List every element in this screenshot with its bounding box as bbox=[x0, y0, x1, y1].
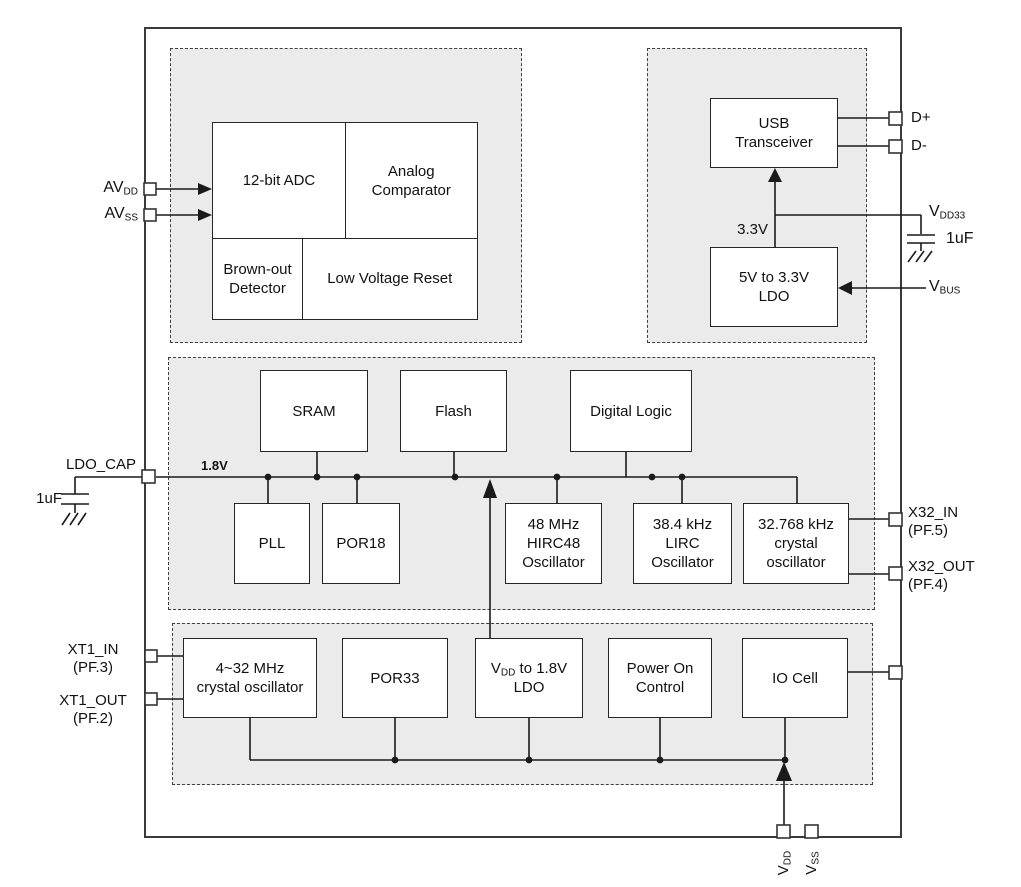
block-pll-label: PLL bbox=[259, 534, 286, 553]
ground-symbol-left bbox=[62, 513, 86, 525]
block-io-cell: IO Cell bbox=[742, 638, 848, 718]
capacitor-right-value: 1uF bbox=[946, 230, 974, 248]
block-lirc-label: 38.4 kHz bbox=[653, 515, 712, 534]
block-xtalhf-label: 4~32 MHz bbox=[216, 659, 285, 678]
block-xtal32-label: 32.768 kHz bbox=[758, 515, 834, 534]
pin-label-d-minus: D- bbox=[911, 137, 927, 155]
block-xtalhf-label2: crystal oscillator bbox=[197, 678, 304, 697]
block-brownout-detector: Brown-out Detector bbox=[212, 238, 303, 321]
net-label-3v3: 3.3V bbox=[720, 221, 768, 238]
pin-label-vdd: VDD bbox=[775, 843, 793, 883]
pin-label-x32-in: X32_IN (PF.5) bbox=[908, 504, 958, 540]
block-hirc48-label3: Oscillator bbox=[522, 553, 585, 572]
block-analog-comparator-label: Analog bbox=[388, 162, 435, 181]
block-poc-label: Power On bbox=[627, 659, 694, 678]
block-brownout-label2: Detector bbox=[229, 279, 286, 298]
block-lirc-label3: Oscillator bbox=[651, 553, 714, 572]
pin-label-vdd33: VDD33 bbox=[929, 203, 965, 222]
block-diagram: 12-bit ADC Analog Comparator Brown-out D… bbox=[0, 0, 1021, 887]
block-hirc48-label2: HIRC48 bbox=[527, 534, 580, 553]
pin-label-avss: AVSS bbox=[58, 205, 138, 224]
block-digital-logic-label: Digital Logic bbox=[590, 402, 672, 421]
block-pll: PLL bbox=[234, 503, 310, 584]
pin-label-ldo-cap: LDO_CAP bbox=[48, 456, 136, 474]
pin-label-xt1-in: XT1_IN (PF.3) bbox=[48, 641, 138, 677]
pin-label-x32-out: X32_OUT (PF.4) bbox=[908, 558, 975, 594]
net-label-1v8: 1.8V bbox=[201, 458, 228, 473]
block-5v-to-3v3-ldo: 5V to 3.3V LDO bbox=[710, 247, 838, 327]
capacitor-left-value: 1uF bbox=[30, 490, 62, 508]
block-ldo18-label: VDD to 1.8V bbox=[491, 659, 567, 679]
block-hirc48-oscillator: 48 MHz HIRC48 Oscillator bbox=[505, 503, 602, 584]
block-usb-transceiver: USB Transceiver bbox=[710, 98, 838, 168]
block-por33: POR33 bbox=[342, 638, 448, 718]
block-power-on-control: Power On Control bbox=[608, 638, 712, 718]
block-lirc-oscillator: 38.4 kHz LIRC Oscillator bbox=[633, 503, 732, 584]
block-iocell-label: IO Cell bbox=[772, 669, 818, 688]
block-digital-logic: Digital Logic bbox=[570, 370, 692, 452]
block-flash: Flash bbox=[400, 370, 507, 452]
pin-label-vss: VSS bbox=[803, 843, 821, 883]
block-lvr-label: Low Voltage Reset bbox=[327, 269, 452, 288]
block-hirc48-label: 48 MHz bbox=[528, 515, 580, 534]
block-usb-label: USB bbox=[759, 114, 790, 133]
block-analog-comparator-label2: Comparator bbox=[372, 181, 451, 200]
block-por33-label: POR33 bbox=[370, 669, 419, 688]
block-ldo5-label2: LDO bbox=[759, 287, 790, 306]
block-adc: 12-bit ADC bbox=[212, 122, 346, 239]
block-ldo5-label: 5V to 3.3V bbox=[739, 268, 809, 287]
wire-ldo-cap-external bbox=[75, 477, 144, 494]
pin-label-d-plus: D+ bbox=[911, 109, 931, 127]
block-32khz-crystal-oscillator: 32.768 kHz crystal oscillator bbox=[743, 503, 849, 584]
block-analog-comparator: Analog Comparator bbox=[345, 122, 479, 239]
block-por18-label: POR18 bbox=[336, 534, 385, 553]
block-lirc-label2: LIRC bbox=[665, 534, 699, 553]
block-brownout-label: Brown-out bbox=[223, 260, 291, 279]
ground-symbol-right bbox=[908, 251, 932, 262]
block-vdd-to-1v8-ldo: VDD to 1.8V LDO bbox=[475, 638, 583, 718]
pin-label-vbus: VBUS bbox=[929, 278, 960, 297]
block-hf-crystal-oscillator: 4~32 MHz crystal oscillator bbox=[183, 638, 317, 718]
block-low-voltage-reset: Low Voltage Reset bbox=[302, 238, 479, 321]
pin-label-avdd: AVDD bbox=[58, 179, 138, 198]
block-sram-label: SRAM bbox=[292, 402, 335, 421]
block-por18: POR18 bbox=[322, 503, 400, 584]
block-usb-label2: Transceiver bbox=[735, 133, 813, 152]
block-ldo18-label2: LDO bbox=[514, 678, 545, 697]
pin-label-xt1-out: XT1_OUT (PF.2) bbox=[48, 692, 138, 728]
block-adc-label: 12-bit ADC bbox=[243, 171, 316, 190]
block-flash-label: Flash bbox=[435, 402, 472, 421]
block-xtal32-label2: crystal bbox=[774, 534, 817, 553]
block-sram: SRAM bbox=[260, 370, 368, 452]
block-poc-label2: Control bbox=[636, 678, 684, 697]
block-xtal32-label3: oscillator bbox=[766, 553, 825, 572]
capacitor-left bbox=[61, 494, 89, 513]
